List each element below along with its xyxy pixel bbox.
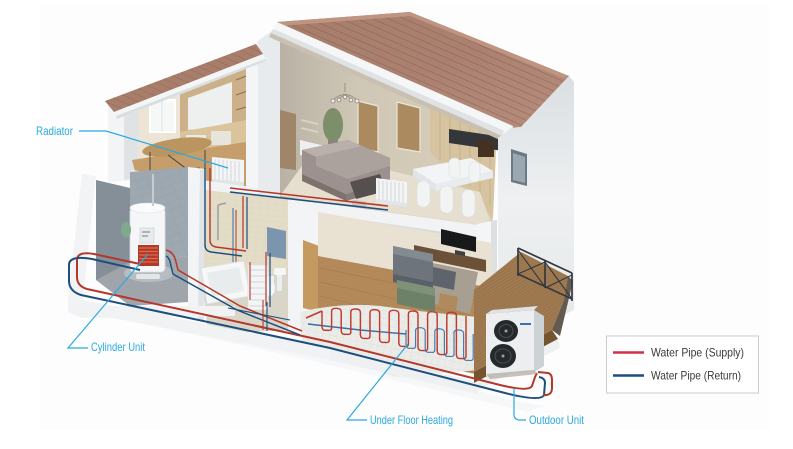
svg-text:Cylinder Unit: Cylinder Unit	[91, 340, 146, 354]
svg-text:Outdoor Unit: Outdoor Unit	[529, 413, 585, 427]
svg-text:Radiator: Radiator	[36, 124, 73, 138]
svg-text:Water Pipe (Return): Water Pipe (Return)	[651, 369, 741, 383]
svg-text:Under Floor Heating: Under Floor Heating	[370, 413, 453, 427]
svg-text:Water Pipe (Supply): Water Pipe (Supply)	[651, 346, 744, 360]
